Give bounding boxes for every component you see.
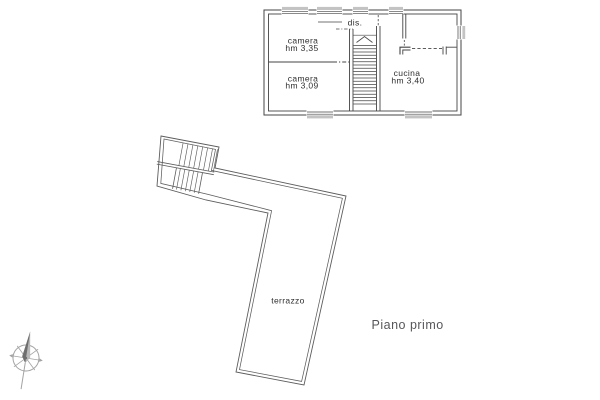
floorplan-page: camera hm 3,35 camera hm 3,09 cucina hm … xyxy=(0,0,600,400)
room-height-camera-2: hm 3,09 xyxy=(285,81,318,91)
room-height-camera-1: hm 3,35 xyxy=(285,43,318,53)
floor-caption: Piano primo xyxy=(372,318,444,332)
terrace-plan xyxy=(153,136,346,385)
interior-walls xyxy=(269,15,381,111)
window-openings xyxy=(282,7,466,119)
window-sills xyxy=(282,7,465,119)
room-label-dis: dis. xyxy=(348,18,363,28)
cucina-partial-wall xyxy=(400,14,457,55)
terrace-outline-outer xyxy=(157,136,346,385)
window-glazing xyxy=(282,11,460,114)
upper-floor-plan xyxy=(264,7,465,119)
stair-landing-line xyxy=(157,162,215,175)
stair-upper-floor xyxy=(353,35,377,104)
floorplan-drawing: camera hm 3,35 camera hm 3,09 cucina hm … xyxy=(0,0,600,400)
room-height-cucina: hm 3,40 xyxy=(391,76,424,86)
needle-tail xyxy=(21,363,25,389)
stair-direction-arrow xyxy=(357,37,373,43)
stair-treads xyxy=(354,46,377,105)
terrace-label: terrazzo xyxy=(271,296,305,306)
compass-rose-icon xyxy=(4,329,47,392)
